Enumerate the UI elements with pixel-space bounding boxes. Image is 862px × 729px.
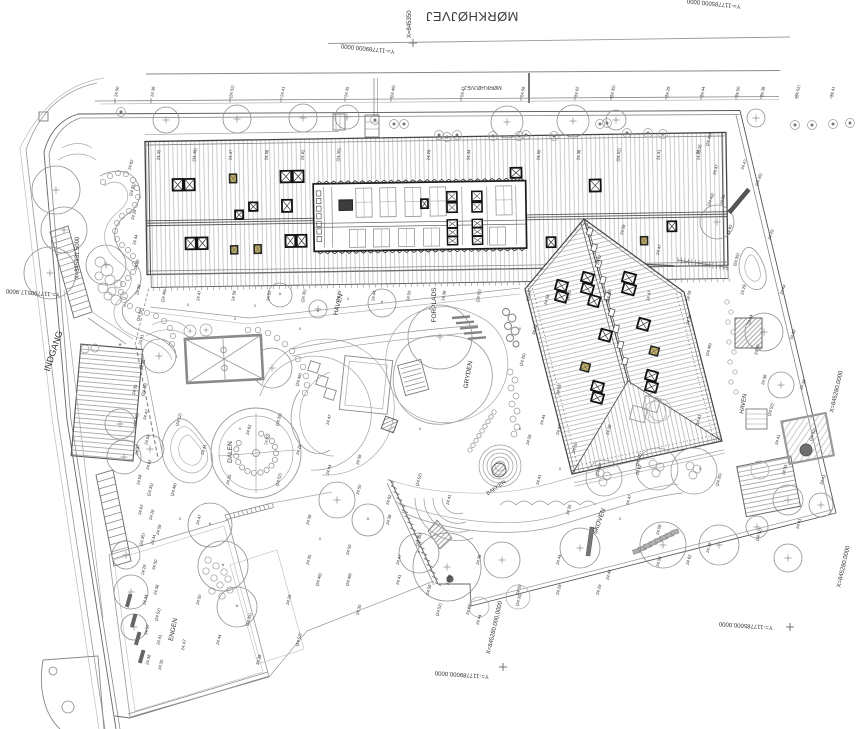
svg-text:*: * [236, 605, 239, 612]
svg-text:24.50: 24.50 [536, 149, 542, 161]
svg-text:24.38: 24.38 [576, 149, 582, 161]
svg-text:24.41: 24.41 [656, 149, 662, 161]
svg-text:24.58: 24.58 [264, 149, 270, 161]
svg-text:*: * [209, 523, 212, 530]
svg-text:24.62: 24.62 [300, 149, 306, 161]
svg-text:MØRKHØJVEJ: MØRKHØJVEJ [426, 9, 519, 24]
svg-text:*: * [367, 518, 370, 525]
svg-text:FORPLADS: FORPLADS [431, 287, 438, 323]
svg-text:24.35: 24.35 [156, 149, 162, 161]
svg-text:X=845350: X=845350 [407, 10, 413, 38]
svg-text:*: * [222, 564, 225, 571]
svg-text:*: * [118, 342, 121, 351]
svg-text:*: * [381, 301, 384, 308]
svg-text:24.44: 24.44 [466, 149, 472, 161]
svg-text:24.47: 24.47 [228, 149, 234, 161]
svg-text:*: * [279, 293, 282, 300]
svg-text:*: * [418, 551, 421, 558]
svg-text:DALEN: DALEN [227, 441, 234, 463]
svg-text:MØRKHØJVEJ: MØRKHØJVEJ [464, 84, 502, 90]
svg-text:24.29: 24.29 [426, 149, 432, 161]
